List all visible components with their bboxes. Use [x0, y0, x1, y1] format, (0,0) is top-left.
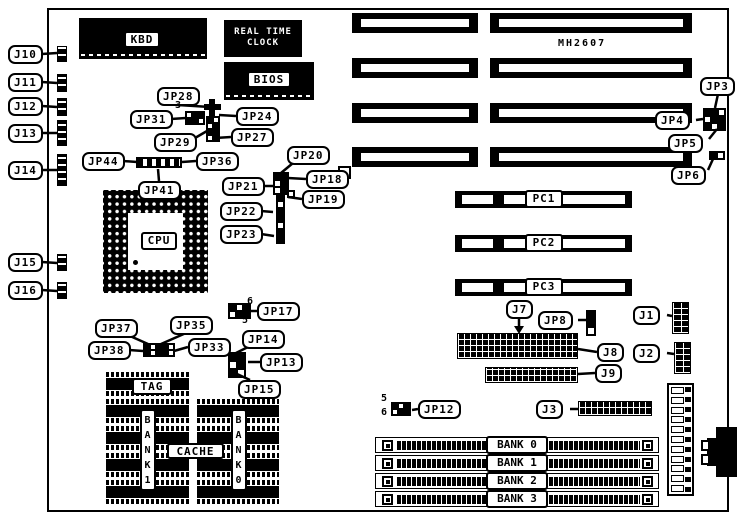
- jp31-block: [185, 111, 205, 125]
- pin-number-jp17_5: 5: [242, 315, 248, 326]
- cpu-pin1-dot: [133, 260, 138, 265]
- power-pin-square: [671, 465, 684, 472]
- callout-j14: J14: [8, 161, 43, 180]
- callout-jp33: JP33: [188, 338, 231, 357]
- callout-j3: J3: [536, 400, 563, 419]
- power-pin-square: [671, 407, 684, 414]
- callout-jp15: JP15: [238, 380, 281, 399]
- isa-slot-7: [352, 147, 478, 167]
- power-connector-pins: [685, 387, 691, 492]
- power-connector: [667, 383, 694, 496]
- callout-jp31: JP31: [130, 110, 173, 129]
- simm-bank-label: BANK 0: [486, 436, 548, 454]
- callout-jp18: JP18: [306, 170, 349, 189]
- simm-bank-label: BANK 2: [486, 472, 548, 490]
- callout-jp6: JP6: [671, 166, 706, 185]
- power-pin-square: [671, 397, 684, 404]
- simm-bank-label: BANK 1: [486, 454, 548, 472]
- callout-jp44: JP44: [82, 152, 125, 171]
- callout-jp29: JP29: [154, 133, 197, 152]
- edge-connector-j14: [57, 154, 67, 186]
- jp37-block: [143, 343, 175, 357]
- jp28-strip: [206, 116, 220, 142]
- isa-slot-stripe: [361, 153, 469, 161]
- simm-latch-right: [642, 458, 653, 469]
- callout-jp13: JP13: [260, 353, 303, 372]
- pci-slot-label: PC2: [525, 234, 563, 252]
- motherboard-diagram: KBD REAL TIME CLOCK BIOS MH2607 CPU TAG …: [0, 0, 739, 520]
- callout-jp21: JP21: [222, 177, 265, 196]
- keyboard-din-pin-a: [701, 440, 710, 451]
- jp12-block: [391, 402, 411, 416]
- pin-number-jp12_5: 5: [381, 393, 387, 404]
- simm-contact-bar: [548, 477, 640, 486]
- simm-latch-left: [382, 494, 393, 505]
- isa-slot-5: [352, 103, 478, 123]
- pin-number-jp12_6: 6: [381, 407, 387, 418]
- edge-connector-j11: [57, 74, 67, 92]
- rtc-label-line1: REAL TIME: [224, 27, 302, 38]
- simm-contact-bar: [548, 495, 640, 504]
- callout-j10: J10: [8, 45, 43, 64]
- power-pin-square: [671, 426, 684, 433]
- simm-latch-left: [382, 458, 393, 469]
- simm-contact-bar: [548, 459, 640, 468]
- isa-slot-1: [352, 13, 478, 33]
- callout-jp8: JP8: [538, 311, 573, 330]
- power-pin-square: [671, 456, 684, 463]
- cpu-label: CPU: [141, 232, 177, 250]
- pin-header-j7-j8: [457, 333, 578, 359]
- pin-header-j2: [674, 342, 691, 374]
- simm-contact-bar: [396, 459, 488, 468]
- callout-jp3: JP3: [700, 77, 735, 96]
- jp8-strip: [586, 310, 596, 336]
- isa-slot-8: [490, 147, 692, 167]
- callout-jp36: JP36: [196, 152, 239, 171]
- callout-jp27: JP27: [231, 128, 274, 147]
- jp20-strip: [276, 193, 285, 244]
- jp28-plus-glyph-bar: [204, 104, 221, 110]
- isa-slot-4: [490, 58, 692, 78]
- callout-jp19: JP19: [302, 190, 345, 209]
- edge-connector-j15: [57, 254, 67, 271]
- jp20-block: [273, 172, 289, 195]
- callout-jp20: JP20: [287, 146, 330, 165]
- pin-number-jp31_3: 3: [175, 100, 181, 111]
- kbd-chip-label: KBD: [124, 31, 160, 48]
- rtc-chip: REAL TIME CLOCK: [224, 20, 302, 57]
- isa-slot-stripe: [361, 109, 469, 117]
- callout-j11: J11: [8, 73, 43, 92]
- callout-jp24: JP24: [236, 107, 279, 126]
- pin-header-j9: [485, 367, 578, 383]
- callout-jp5: JP5: [668, 134, 703, 153]
- simm-latch-right: [642, 494, 653, 505]
- isa-slot-stripe: [361, 19, 469, 27]
- jp3-block: [703, 108, 726, 131]
- power-pin-square: [671, 485, 684, 492]
- isa-slot-stripe: [499, 153, 683, 161]
- cache-label: CACHE: [167, 443, 224, 459]
- simm-contact-bar: [396, 495, 488, 504]
- isa-slot-stripe: [499, 19, 683, 27]
- callout-j7: J7: [506, 300, 533, 319]
- pci-slot-key-gap: [493, 235, 504, 252]
- edge-connector-j12: [57, 98, 67, 116]
- pci-slot-key-gap: [493, 191, 504, 208]
- pin-number-jp17_6: 6: [247, 296, 253, 307]
- callout-jp41: JP41: [138, 181, 181, 200]
- pci-slot-key-gap: [493, 279, 504, 296]
- jp6-block: [709, 151, 725, 160]
- isa-slot-2: [490, 13, 692, 33]
- power-pin-square: [671, 475, 684, 482]
- callout-j8: J8: [597, 343, 624, 362]
- board-model: MH2607: [558, 38, 606, 49]
- bios-chip-label: BIOS: [247, 71, 291, 88]
- simm-latch-left: [382, 440, 393, 451]
- simm-contact-bar: [396, 477, 488, 486]
- callout-j15: J15: [8, 253, 43, 272]
- power-pin-square: [671, 446, 684, 453]
- isa-slot-stripe: [499, 64, 683, 72]
- callout-jp4: JP4: [655, 111, 690, 130]
- edge-connector-j10: [57, 46, 67, 62]
- callout-jp38: JP38: [88, 341, 131, 360]
- callout-jp22: JP22: [220, 202, 263, 221]
- power-pin-square: [671, 387, 684, 394]
- callout-j2: J2: [633, 344, 660, 363]
- power-pin-square: [671, 416, 684, 423]
- callout-jp12: JP12: [418, 400, 461, 419]
- jp44-jp36-pin-strip: [136, 157, 182, 168]
- jp14-block: [228, 352, 246, 378]
- callout-jp14: JP14: [242, 330, 285, 349]
- simm-latch-left: [382, 476, 393, 487]
- callout-j1: J1: [633, 306, 660, 325]
- tag-chip-label: TAG: [132, 378, 172, 395]
- callout-jp23: JP23: [220, 225, 263, 244]
- pci-slot-label: PC1: [525, 190, 563, 208]
- callout-j9: J9: [595, 364, 622, 383]
- keyboard-din-pin-b: [701, 454, 710, 465]
- callout-j16: J16: [8, 281, 43, 300]
- callout-jp37: JP37: [95, 319, 138, 338]
- pin-header-j3: [578, 401, 652, 416]
- callout-jp35: JP35: [170, 316, 213, 335]
- simm-latch-right: [642, 476, 653, 487]
- simm-contact-bar: [548, 441, 640, 450]
- bank0-column-label: B A N K 0: [231, 409, 247, 491]
- power-pin-square: [671, 436, 684, 443]
- edge-connector-j16: [57, 282, 67, 299]
- callout-j12: J12: [8, 97, 43, 116]
- rtc-label-line2: CLOCK: [224, 38, 302, 49]
- simm-contact-bar: [396, 441, 488, 450]
- bank1-column-label: B A N K 1: [140, 409, 156, 491]
- callout-j13: J13: [8, 124, 43, 143]
- edge-connector-j13: [57, 120, 67, 146]
- pci-slot-label: PC3: [525, 278, 563, 296]
- simm-bank-label: BANK 3: [486, 490, 548, 508]
- simm-latch-right: [642, 440, 653, 451]
- callout-jp17: JP17: [257, 302, 300, 321]
- isa-slot-stripe: [361, 64, 469, 72]
- isa-slot-3: [352, 58, 478, 78]
- pin-header-j1: [672, 302, 689, 334]
